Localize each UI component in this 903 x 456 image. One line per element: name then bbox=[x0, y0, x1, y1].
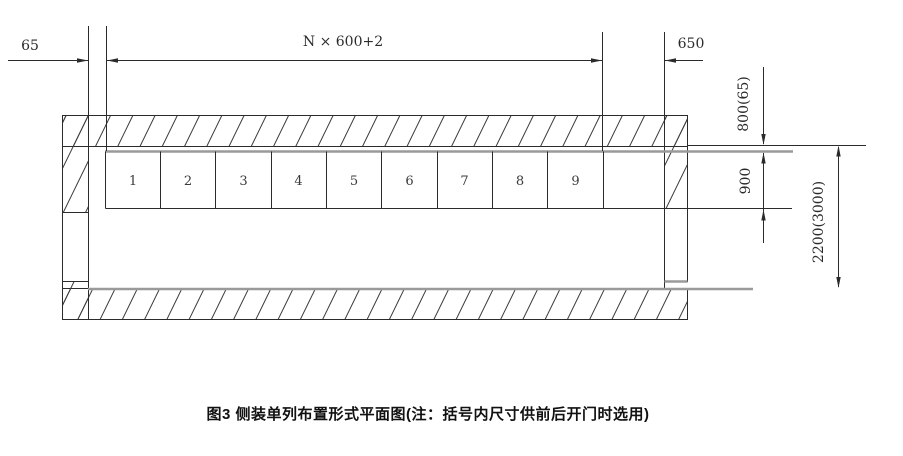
arrow-up bbox=[761, 153, 765, 164]
dim-label-unit-depth: 900 bbox=[738, 168, 754, 195]
cell-number: 5 bbox=[350, 174, 358, 189]
wall-left-upper bbox=[63, 116, 89, 213]
room-interior-outline bbox=[89, 147, 665, 289]
cell-number: 6 bbox=[405, 174, 413, 189]
figure-canvas: 1 2 3 4 5 6 7 8 9 65 N × 6 bbox=[0, 0, 903, 456]
wall-left-lower bbox=[63, 282, 89, 320]
arrow-up bbox=[761, 210, 765, 221]
dim-label-bay-width: N × 600+2 bbox=[303, 34, 383, 50]
arrow-down bbox=[836, 277, 840, 288]
cell-number: 8 bbox=[516, 174, 524, 189]
cell-number: 1 bbox=[129, 174, 137, 189]
cell-number: 3 bbox=[239, 174, 247, 189]
dim-label-left-gap: 65 bbox=[21, 38, 39, 54]
wall-right-opening bbox=[665, 209, 688, 282]
cell-number: 9 bbox=[571, 174, 579, 189]
wall-left-opening bbox=[63, 213, 89, 282]
wall-bottom bbox=[63, 289, 688, 320]
cell-number: 7 bbox=[460, 174, 468, 189]
figure-caption: 图3 侧装单列布置形式平面图(注：括号内尺寸供前后开门时选用) bbox=[206, 403, 649, 424]
plan-drawing: 1 2 3 4 5 6 7 8 9 65 N × 6 bbox=[0, 0, 903, 456]
dim-label-room-depth: 2200(3000) bbox=[811, 181, 827, 263]
cell-number: 2 bbox=[184, 174, 192, 189]
arrow-up bbox=[836, 146, 840, 157]
wall-right-upper bbox=[665, 116, 688, 209]
dim-label-right-end: 650 bbox=[678, 36, 705, 52]
cell-number: 4 bbox=[294, 174, 302, 189]
dim-label-top-clearance: 800(65) bbox=[736, 76, 752, 131]
wall-top bbox=[63, 116, 688, 147]
arrow-down bbox=[761, 134, 765, 145]
